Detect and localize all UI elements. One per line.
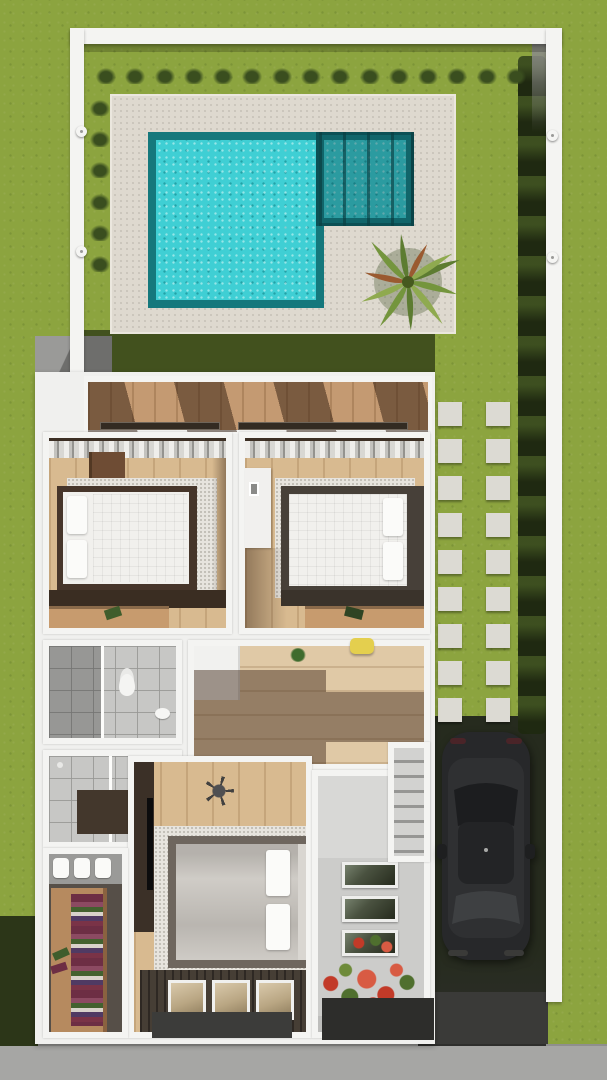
wall-shadow (84, 44, 546, 52)
stone-column-left (438, 402, 462, 722)
wall-shadow-right (212, 458, 226, 590)
floor-shadow (194, 670, 326, 764)
washbasin (155, 708, 170, 719)
shrub (418, 68, 438, 84)
sidewalk (0, 1044, 607, 1080)
stepping-stone (438, 550, 462, 574)
shrub-border-top (96, 64, 526, 88)
wardrobe-hanging-clothes (49, 438, 226, 458)
stepping-stone (438, 587, 462, 611)
stepping-stone (486, 550, 510, 574)
shrub (90, 131, 110, 147)
boundary-hedge (518, 56, 546, 734)
potted-plant (290, 648, 306, 662)
shrub (360, 68, 380, 84)
shower-fixture (57, 762, 63, 768)
boundary-wall-left (70, 28, 84, 376)
stepping-stone (438, 698, 462, 722)
sliding-door (238, 422, 408, 430)
stepping-stone (486, 402, 510, 426)
shrub (90, 162, 110, 178)
shower-glass (101, 646, 104, 738)
front-doormat (152, 1012, 292, 1038)
pillow (383, 498, 403, 536)
wall-lamp (76, 126, 87, 137)
shrub (90, 100, 110, 116)
shrub (90, 225, 110, 241)
bed-ledge (281, 590, 424, 606)
closet-bench (49, 854, 122, 884)
pillow (67, 496, 87, 534)
boundary-wall-right (546, 28, 562, 1002)
glass-panel (342, 896, 398, 922)
shrub (447, 68, 467, 84)
wall-lamp (547, 130, 558, 141)
stepping-stone (438, 624, 462, 648)
room-bedroom-1 (43, 432, 232, 634)
stepping-stone (486, 661, 510, 685)
shrub (506, 68, 526, 84)
yellow-stool (350, 638, 374, 654)
room-master-bedroom (128, 756, 312, 1038)
terrace (84, 376, 432, 434)
pool-water (156, 140, 316, 300)
entry-dark-paving (322, 998, 434, 1040)
flowers-under-glass (342, 930, 398, 956)
pool-main (148, 132, 324, 308)
stepping-stone (438, 402, 462, 426)
shrub (330, 68, 350, 84)
shrub (90, 256, 110, 272)
towels (53, 858, 111, 878)
stepping-stone (486, 624, 510, 648)
shower-zone (49, 646, 101, 738)
shrub (301, 68, 321, 84)
pillow (266, 904, 290, 950)
room-bedroom-2 (239, 432, 430, 634)
car (436, 728, 536, 966)
wall-lamp (76, 246, 87, 257)
stepping-stone (486, 439, 510, 463)
stepping-stone (486, 698, 510, 722)
towel (95, 858, 111, 878)
towel (74, 858, 90, 878)
picture-frame (249, 482, 259, 496)
glass-panel (342, 862, 398, 888)
stepping-stone-path (438, 402, 510, 722)
headboard (298, 844, 306, 960)
shrub-border-left (88, 100, 112, 272)
stepping-stone (438, 439, 462, 463)
shrub (389, 68, 409, 84)
shrub (125, 68, 145, 84)
tv-screen (147, 798, 153, 890)
shrub (155, 68, 175, 84)
right-wall-inner-face (532, 42, 546, 132)
shrub (213, 68, 233, 84)
stepping-stone (438, 476, 462, 500)
blanket (93, 494, 187, 582)
stepping-stone (438, 513, 462, 537)
shrub (90, 194, 110, 210)
left-shade-bed (0, 916, 38, 1046)
towel (53, 858, 69, 878)
wall-shadow-left (245, 548, 287, 628)
wardrobe-shelf (51, 888, 107, 1032)
house (35, 372, 435, 1044)
wardrobe-hanging-clothes (245, 438, 424, 458)
stepping-stone (486, 513, 510, 537)
pillow (67, 540, 87, 578)
room-walk-in-closet (43, 848, 128, 1038)
palm-tree (346, 198, 470, 362)
drawer-console (305, 606, 424, 628)
sliding-door (100, 422, 220, 430)
boundary-wall-top (70, 28, 562, 44)
office-chair (204, 776, 234, 806)
pillow (383, 542, 403, 580)
toilet (119, 674, 135, 696)
shrub (477, 68, 497, 84)
stepping-stone (486, 476, 510, 500)
stepping-stone (486, 587, 510, 611)
shrub (96, 68, 116, 84)
floor-shadow (326, 692, 424, 742)
shrub (272, 68, 292, 84)
pillow (266, 850, 290, 896)
desk (245, 468, 271, 548)
room-bathroom-1 (43, 640, 182, 744)
shrub (242, 68, 262, 84)
floor-plan-render (0, 0, 607, 1080)
room-staircase (388, 742, 430, 862)
wall-lamp (547, 252, 558, 263)
stone-column-right (486, 402, 510, 722)
stepping-stone (438, 661, 462, 685)
shrub (184, 68, 204, 84)
folded-clothes (71, 894, 103, 1026)
